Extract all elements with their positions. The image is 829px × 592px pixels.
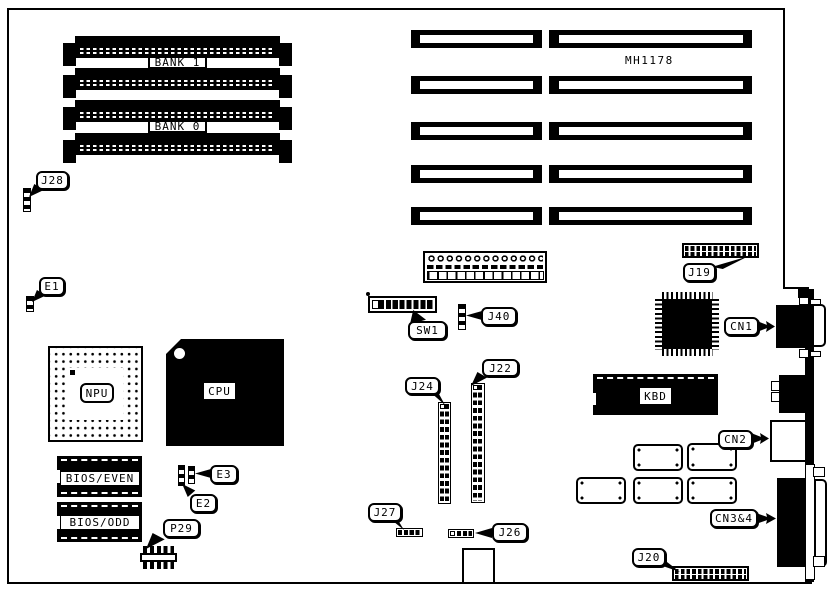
qfp-leads-top <box>662 292 713 299</box>
callout-pointer <box>756 513 776 524</box>
simm-contacts <box>80 84 275 86</box>
kbd-text: KBD <box>644 390 667 403</box>
socket-outline <box>576 477 626 504</box>
e2-jumper <box>178 465 185 486</box>
j27-text: J27 <box>374 506 397 519</box>
j28-text: J28 <box>41 174 64 187</box>
solder-pad <box>771 392 780 402</box>
cn1-screw-tab <box>810 299 821 305</box>
pin-column <box>473 385 477 501</box>
j28-jumper <box>23 188 31 212</box>
cpu-pin1-dot <box>174 348 185 359</box>
cn34-screw-tab <box>813 556 825 567</box>
j19-connector <box>682 243 759 258</box>
bank0-text: BANK 0 <box>155 120 201 133</box>
bios-even-label: BIOS/EVEN <box>60 471 140 486</box>
p29-callout: P29 <box>163 519 200 538</box>
e2-callout: E2 <box>190 494 217 513</box>
motherboard-diagram: BANK 1 BANK 0 MH1178 J28 E1 NPU <box>0 0 829 592</box>
expansion-slot <box>549 207 752 225</box>
j26-pin1 <box>450 531 455 536</box>
sw1-orientation-dot <box>366 292 370 296</box>
board-edge-right-upper <box>783 8 785 289</box>
cpu-text: CPU <box>208 385 231 398</box>
j27-pins <box>398 530 421 535</box>
j24-text: J24 <box>411 380 434 393</box>
e1-text: E1 <box>44 280 59 293</box>
j20-connector <box>672 566 749 581</box>
npu-label: NPU <box>80 383 114 403</box>
socket-outline <box>633 477 683 504</box>
cn1-screw-tab <box>810 351 821 357</box>
bank1-text: BANK 1 <box>155 56 201 69</box>
simm-clip <box>279 43 292 66</box>
cn2-port <box>770 420 807 462</box>
pin-row <box>685 246 756 251</box>
qfp-chip <box>662 299 712 349</box>
pin1-marker <box>473 385 478 390</box>
j24-header <box>438 402 451 504</box>
slot-opening <box>420 81 533 89</box>
j27-callout: J27 <box>368 503 402 522</box>
callout-pointer <box>475 528 492 538</box>
kbd-label: KBD <box>640 388 671 404</box>
sw1-callout: SW1 <box>408 321 447 340</box>
board-edge-left <box>7 8 9 584</box>
kbd-notch <box>591 393 596 405</box>
bank0-label: BANK 0 <box>148 120 207 133</box>
power-terminal-row <box>427 271 544 281</box>
pin-row <box>675 575 746 580</box>
chip-socket-dashes <box>61 537 138 539</box>
qfp-leads-right <box>712 299 719 350</box>
expansion-slot <box>411 165 542 183</box>
j22-text: J22 <box>489 362 512 375</box>
cn1-screw-tab <box>799 297 809 305</box>
simm-socket <box>75 133 280 155</box>
j19-text: J19 <box>688 266 711 279</box>
simm-contacts <box>80 116 275 118</box>
cn1-port-body <box>776 305 812 348</box>
bios-odd-text: BIOS/ODD <box>70 516 131 529</box>
expansion-slot <box>411 76 542 94</box>
expansion-slot <box>549 76 752 94</box>
socket-outline <box>633 444 683 471</box>
p29-body <box>140 553 177 562</box>
cn2-callout: CN2 <box>718 430 753 449</box>
cpu-label: CPU <box>204 383 235 399</box>
j26-callout: J26 <box>492 523 528 542</box>
slot-opening <box>420 170 533 178</box>
pin1-marker <box>440 404 445 409</box>
e1-callout: E1 <box>39 277 65 296</box>
j27-connector <box>396 528 423 537</box>
expansion-slot <box>411 30 542 48</box>
cn1-text: CN1 <box>730 320 753 333</box>
slot-opening <box>420 127 533 135</box>
callout-pointer <box>757 321 775 332</box>
j24-callout: J24 <box>405 377 440 395</box>
callout-pointer <box>466 311 482 320</box>
simm-clip <box>279 140 292 163</box>
expansion-slot <box>411 122 542 140</box>
slot-opening <box>420 212 533 220</box>
pin-column <box>478 385 482 501</box>
chip-socket-dashes <box>61 459 138 461</box>
cn34-text: CN3&4 <box>715 512 753 525</box>
simm-contacts <box>80 112 275 114</box>
socket-outline <box>687 477 737 504</box>
expansion-slot <box>411 207 542 225</box>
pin-row <box>685 252 756 257</box>
simm-contacts <box>80 48 275 50</box>
simm-clip <box>279 75 292 98</box>
simm-contacts <box>80 149 275 151</box>
j40-callout: J40 <box>481 307 517 326</box>
sw1-dip-switch <box>368 296 437 313</box>
e3-text: E3 <box>216 468 231 481</box>
cn1-screw-tab <box>799 349 809 358</box>
slot-opening <box>559 127 743 135</box>
cn34-callout: CN3&4 <box>710 509 758 528</box>
expansion-slot <box>549 165 752 183</box>
power-connector <box>423 251 547 283</box>
chip-socket-dashes <box>597 377 714 379</box>
expansion-slot <box>549 30 752 48</box>
slot-opening <box>559 81 743 89</box>
callout-pointer <box>195 469 211 478</box>
chip-socket-dashes <box>61 492 138 494</box>
npu-pin1-marker <box>70 370 75 375</box>
qfp-leads-bottom <box>662 349 713 356</box>
simm-socket <box>75 100 280 122</box>
npu-text: NPU <box>86 387 109 400</box>
p29-pins-bottom <box>143 561 174 569</box>
board-edge-top <box>7 8 785 10</box>
j26-pins <box>457 531 472 536</box>
cn34-dsub-face <box>814 479 827 567</box>
sw1-switch-1 <box>372 300 379 309</box>
sw1-switch-cells <box>372 300 433 309</box>
e3-callout: E3 <box>210 465 238 484</box>
npu-socket: NPU <box>48 346 143 442</box>
cn34-port-body <box>777 478 805 567</box>
e1-jumper <box>26 296 34 312</box>
slot-opening <box>559 170 743 178</box>
simm-contacts <box>80 145 275 147</box>
cn1-dsub-face <box>812 304 826 347</box>
j26-connector <box>448 529 474 538</box>
j28-callout: J28 <box>36 171 69 190</box>
board-edge-bottom <box>7 582 812 584</box>
pin-column <box>445 404 449 502</box>
j20-callout: J20 <box>632 548 666 567</box>
board-edge-notch <box>462 548 495 584</box>
bios-even-text: BIOS/EVEN <box>66 472 135 485</box>
j40-text: J40 <box>488 310 511 323</box>
chip-socket-dashes <box>61 505 138 507</box>
cn34-screw-tab <box>813 467 825 477</box>
sw1-text: SW1 <box>416 324 439 337</box>
slot-opening <box>559 35 743 43</box>
e2-text: E2 <box>196 497 211 510</box>
pin-column <box>440 404 444 502</box>
j22-header <box>471 383 485 503</box>
bank1-label: BANK 1 <box>148 56 207 69</box>
pin-row <box>675 569 746 574</box>
j22-callout: J22 <box>482 359 519 377</box>
j19-callout: J19 <box>683 263 716 282</box>
p29-text: P29 <box>170 522 193 535</box>
cn2-text: CN2 <box>724 433 747 446</box>
e3-jumper <box>188 466 195 484</box>
aux-port-body <box>779 375 809 413</box>
simm-socket <box>75 68 280 90</box>
j26-text: J26 <box>499 526 522 539</box>
j20-text: J20 <box>638 551 661 564</box>
power-pin-row <box>427 254 543 263</box>
simm-socket <box>75 36 280 58</box>
simm-contacts <box>80 80 275 82</box>
bios-odd-label: BIOS/ODD <box>60 515 140 530</box>
solder-pad <box>771 381 780 391</box>
board-model-text: MH1178 <box>625 54 674 67</box>
cn1-callout: CN1 <box>724 317 759 336</box>
callout-pointer <box>751 433 769 444</box>
slot-opening <box>559 212 743 220</box>
j40-jumper <box>458 304 466 330</box>
simm-clip <box>279 107 292 130</box>
simm-contacts <box>80 52 275 54</box>
slot-opening <box>420 35 533 43</box>
expansion-slot <box>549 122 752 140</box>
power-key-row <box>427 265 543 269</box>
qfp-leads-left <box>655 299 662 350</box>
